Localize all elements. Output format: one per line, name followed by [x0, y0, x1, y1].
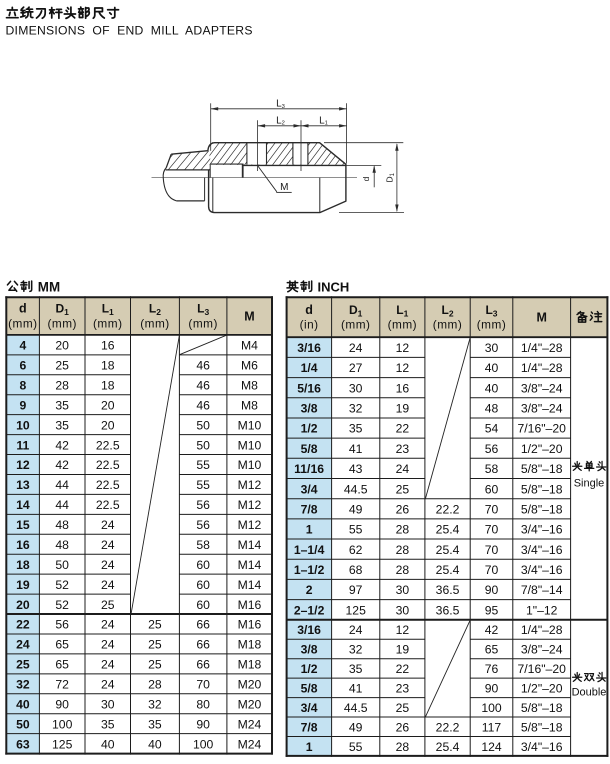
svg-text:35: 35 — [349, 662, 363, 676]
svg-text:66: 66 — [196, 638, 210, 652]
svg-text:M20: M20 — [238, 678, 262, 692]
svg-text:19: 19 — [16, 578, 30, 592]
svg-text:49: 49 — [349, 502, 363, 516]
svg-text:M18: M18 — [238, 658, 262, 672]
svg-text:3/8"–24: 3/8"–24 — [521, 381, 563, 395]
svg-text:25: 25 — [16, 658, 30, 672]
svg-text:(mm): (mm) — [188, 317, 218, 331]
svg-text:80: 80 — [196, 697, 210, 711]
svg-text:24: 24 — [101, 558, 115, 572]
svg-text:125: 125 — [346, 603, 367, 617]
svg-text:70: 70 — [485, 563, 499, 577]
svg-text:M12: M12 — [238, 478, 262, 492]
svg-text:22.5: 22.5 — [96, 478, 120, 492]
svg-text:25.4: 25.4 — [436, 523, 460, 537]
svg-text:28: 28 — [396, 740, 410, 754]
svg-text:70: 70 — [485, 523, 499, 537]
svg-text:60: 60 — [485, 482, 499, 496]
svg-text:M: M — [244, 310, 254, 324]
svg-text:3/4: 3/4 — [301, 701, 318, 715]
svg-text:1/4: 1/4 — [301, 361, 318, 375]
svg-text:7/16"–20: 7/16"–20 — [518, 662, 567, 676]
svg-text:22: 22 — [396, 662, 410, 676]
svg-text:8: 8 — [19, 378, 26, 392]
svg-text:DIMENSIONS OF END MILL ADAPTER: DIMENSIONS OF END MILL ADAPTERS — [6, 24, 253, 38]
svg-text:1"–12: 1"–12 — [526, 603, 558, 617]
svg-text:20: 20 — [16, 598, 30, 612]
svg-text:60: 60 — [196, 578, 210, 592]
svg-text:14: 14 — [16, 498, 30, 512]
svg-text:12: 12 — [396, 623, 410, 637]
svg-text:50: 50 — [196, 438, 210, 452]
svg-text:32: 32 — [16, 678, 30, 692]
svg-text:M14: M14 — [238, 578, 262, 592]
svg-text:32: 32 — [148, 697, 162, 711]
svg-text:11: 11 — [16, 438, 29, 452]
svg-text:25.4: 25.4 — [436, 543, 460, 557]
svg-text:50: 50 — [16, 717, 30, 731]
svg-text:60: 60 — [196, 598, 210, 612]
svg-text:5/8"–18: 5/8"–18 — [521, 462, 563, 476]
svg-text:3/8: 3/8 — [301, 402, 318, 416]
svg-text:(mm): (mm) — [388, 318, 418, 332]
svg-text:72: 72 — [55, 678, 69, 692]
svg-text:12: 12 — [16, 458, 30, 472]
svg-text:62: 62 — [349, 543, 363, 557]
svg-text:3/16: 3/16 — [297, 341, 321, 355]
svg-text:41: 41 — [349, 442, 363, 456]
svg-text:3/4: 3/4 — [301, 482, 318, 496]
svg-text:3/8"–24: 3/8"–24 — [521, 402, 563, 416]
svg-text:M12: M12 — [238, 518, 262, 532]
svg-text:100: 100 — [52, 717, 73, 731]
svg-text:16: 16 — [101, 339, 115, 353]
svg-text:40: 40 — [16, 697, 30, 711]
svg-text:20: 20 — [55, 339, 69, 353]
svg-text:M12: M12 — [238, 498, 262, 512]
svg-text:M8: M8 — [241, 398, 258, 412]
svg-text:65: 65 — [55, 638, 69, 652]
svg-text:25: 25 — [396, 701, 410, 715]
svg-text:44: 44 — [55, 498, 69, 512]
svg-text:25: 25 — [148, 658, 162, 672]
svg-text:24: 24 — [16, 638, 30, 652]
svg-text:42: 42 — [55, 438, 69, 452]
svg-text:24: 24 — [101, 678, 115, 692]
svg-text:25.4: 25.4 — [436, 563, 460, 577]
svg-text:44.5: 44.5 — [344, 482, 368, 496]
svg-text:40: 40 — [485, 381, 499, 395]
svg-text:27: 27 — [349, 361, 363, 375]
svg-text:L1: L1 — [319, 115, 328, 126]
svg-text:35: 35 — [55, 418, 69, 432]
svg-text:54: 54 — [485, 422, 499, 436]
svg-text:125: 125 — [52, 737, 73, 751]
svg-text:70: 70 — [196, 678, 210, 692]
svg-text:50: 50 — [55, 558, 69, 572]
svg-text:48: 48 — [485, 402, 499, 416]
svg-text:66: 66 — [196, 618, 210, 632]
svg-text:36.5: 36.5 — [436, 583, 460, 597]
svg-text:24: 24 — [101, 578, 115, 592]
svg-text:M20: M20 — [238, 697, 262, 711]
svg-text:M: M — [280, 182, 288, 193]
svg-text:26: 26 — [396, 720, 410, 734]
svg-text:1/4"–28: 1/4"–28 — [521, 361, 563, 375]
svg-text:Double: Double — [572, 686, 607, 698]
svg-text:M8: M8 — [241, 378, 258, 392]
svg-text:3/4"–16: 3/4"–16 — [521, 563, 563, 577]
svg-text:1: 1 — [306, 740, 313, 754]
svg-text:124: 124 — [481, 740, 502, 754]
svg-text:2: 2 — [306, 583, 313, 597]
svg-text:16: 16 — [16, 538, 30, 552]
svg-text:24: 24 — [101, 618, 115, 632]
svg-text:7/16"–20: 7/16"–20 — [518, 422, 567, 436]
svg-text:24: 24 — [101, 638, 115, 652]
svg-text:24: 24 — [101, 538, 115, 552]
svg-text:(mm): (mm) — [477, 318, 507, 332]
svg-text:D1: D1 — [385, 172, 397, 182]
svg-text:48: 48 — [55, 518, 69, 532]
svg-text:5/16: 5/16 — [297, 381, 321, 395]
svg-text:28: 28 — [396, 523, 410, 537]
svg-text:43: 43 — [349, 462, 363, 476]
svg-text:22: 22 — [16, 618, 30, 632]
svg-text:22.5: 22.5 — [96, 458, 120, 472]
svg-text:44: 44 — [55, 478, 69, 492]
svg-text:90: 90 — [55, 697, 69, 711]
svg-text:1/2"–20: 1/2"–20 — [521, 682, 563, 696]
svg-text:22.2: 22.2 — [436, 502, 460, 516]
svg-text:d: d — [305, 303, 313, 317]
svg-text:35: 35 — [148, 717, 162, 731]
svg-text:30: 30 — [485, 341, 499, 355]
svg-text:20: 20 — [101, 398, 115, 412]
svg-text:M10: M10 — [238, 418, 262, 432]
svg-text:13: 13 — [16, 478, 30, 492]
svg-text:(in): (in) — [300, 318, 319, 332]
svg-text:M14: M14 — [238, 558, 262, 572]
svg-text:10: 10 — [16, 418, 30, 432]
svg-text:M16: M16 — [238, 618, 262, 632]
svg-text:25: 25 — [396, 482, 410, 496]
svg-text:5/8: 5/8 — [301, 442, 318, 456]
svg-text:90: 90 — [485, 583, 499, 597]
svg-text:58: 58 — [485, 462, 499, 476]
svg-text:24: 24 — [349, 341, 363, 355]
svg-text:22.2: 22.2 — [436, 720, 460, 734]
svg-text:65: 65 — [55, 658, 69, 672]
svg-text:5/8"–18: 5/8"–18 — [521, 701, 563, 715]
svg-text:(mm): (mm) — [93, 317, 123, 331]
svg-text:65: 65 — [485, 643, 499, 657]
svg-text:23: 23 — [396, 442, 410, 456]
svg-text:95: 95 — [485, 603, 499, 617]
svg-text:7/8: 7/8 — [301, 720, 318, 734]
svg-text:40: 40 — [101, 737, 115, 751]
svg-text:5/8: 5/8 — [301, 682, 318, 696]
svg-text:23: 23 — [396, 682, 410, 696]
svg-text:44.5: 44.5 — [344, 701, 368, 715]
svg-text:19: 19 — [396, 643, 410, 657]
svg-text:28: 28 — [148, 678, 162, 692]
svg-text:49: 49 — [349, 720, 363, 734]
svg-text:24: 24 — [101, 658, 115, 672]
svg-text:M18: M18 — [238, 638, 262, 652]
svg-text:55: 55 — [349, 523, 363, 537]
svg-text:3/16: 3/16 — [297, 623, 321, 637]
svg-text:35: 35 — [349, 422, 363, 436]
svg-text:70: 70 — [485, 502, 499, 516]
svg-text:55: 55 — [196, 458, 210, 472]
svg-text:L2: L2 — [276, 115, 285, 126]
svg-text:97: 97 — [349, 583, 363, 597]
svg-text:15: 15 — [16, 518, 30, 532]
svg-text:42: 42 — [55, 458, 69, 472]
svg-text:M6: M6 — [241, 359, 258, 373]
svg-text:1/2: 1/2 — [301, 662, 318, 676]
svg-text:56: 56 — [196, 498, 210, 512]
svg-text:24: 24 — [349, 623, 363, 637]
svg-text:M10: M10 — [238, 438, 262, 452]
svg-text:100: 100 — [193, 737, 214, 751]
svg-text:12: 12 — [396, 341, 410, 355]
svg-text:46: 46 — [196, 398, 210, 412]
svg-text:100: 100 — [481, 701, 502, 715]
svg-text:d: d — [361, 176, 371, 181]
svg-text:66: 66 — [196, 658, 210, 672]
svg-text:52: 52 — [55, 598, 69, 612]
svg-text:25.4: 25.4 — [436, 740, 460, 754]
svg-text:60: 60 — [196, 558, 210, 572]
svg-text:1/2"–20: 1/2"–20 — [521, 442, 563, 456]
svg-text:40: 40 — [148, 737, 162, 751]
svg-text:12: 12 — [396, 361, 410, 375]
svg-text:1/4"–28: 1/4"–28 — [521, 341, 563, 355]
svg-text:9: 9 — [19, 398, 26, 412]
svg-text:55: 55 — [349, 740, 363, 754]
svg-text:90: 90 — [196, 717, 210, 731]
svg-text:30: 30 — [396, 583, 410, 597]
svg-text:32: 32 — [349, 643, 363, 657]
svg-text:3/8"–24: 3/8"–24 — [521, 643, 563, 657]
svg-text:30: 30 — [396, 603, 410, 617]
svg-text:25: 25 — [148, 618, 162, 632]
svg-text:5/8"–18: 5/8"–18 — [521, 720, 563, 734]
svg-text:58: 58 — [196, 538, 210, 552]
svg-text:30: 30 — [101, 697, 115, 711]
svg-text:28: 28 — [396, 563, 410, 577]
svg-text:56: 56 — [55, 618, 69, 632]
svg-text:MM: MM — [38, 280, 60, 295]
svg-text:3/4"–16: 3/4"–16 — [521, 543, 563, 557]
svg-text:30: 30 — [349, 381, 363, 395]
svg-text:35: 35 — [101, 717, 115, 731]
svg-text:16: 16 — [396, 381, 410, 395]
svg-text:5/8"–18: 5/8"–18 — [521, 482, 563, 496]
svg-text:M16: M16 — [238, 598, 262, 612]
svg-text:25: 25 — [148, 638, 162, 652]
svg-text:INCH: INCH — [318, 280, 350, 295]
svg-text:18: 18 — [16, 558, 30, 572]
svg-text:M: M — [536, 311, 546, 325]
svg-text:50: 50 — [196, 418, 210, 432]
svg-text:Single: Single — [574, 477, 605, 489]
svg-text:28: 28 — [396, 543, 410, 557]
svg-text:d: d — [19, 302, 27, 316]
svg-text:2–1/2: 2–1/2 — [294, 603, 325, 617]
svg-text:6: 6 — [19, 359, 26, 373]
svg-text:M10: M10 — [238, 458, 262, 472]
svg-text:3/4"–16: 3/4"–16 — [521, 740, 563, 754]
svg-text:25: 25 — [55, 359, 69, 373]
svg-text:3/4"–16: 3/4"–16 — [521, 523, 563, 537]
svg-text:M24: M24 — [238, 717, 262, 731]
svg-text:(mm): (mm) — [47, 317, 77, 331]
svg-text:55: 55 — [196, 478, 210, 492]
svg-text:76: 76 — [485, 662, 499, 676]
svg-text:M4: M4 — [241, 339, 258, 353]
svg-text:52: 52 — [55, 578, 69, 592]
svg-text:48: 48 — [55, 538, 69, 552]
svg-text:24: 24 — [101, 518, 115, 532]
svg-text:L3: L3 — [276, 99, 285, 110]
svg-text:68: 68 — [349, 563, 363, 577]
svg-text:19: 19 — [396, 402, 410, 416]
svg-text:22.5: 22.5 — [96, 438, 120, 452]
svg-text:56: 56 — [196, 518, 210, 532]
svg-text:36.5: 36.5 — [436, 603, 460, 617]
svg-text:117: 117 — [482, 720, 502, 734]
svg-text:1–1/4: 1–1/4 — [294, 543, 325, 557]
svg-text:7/8: 7/8 — [301, 502, 318, 516]
svg-text:M14: M14 — [238, 538, 262, 552]
svg-text:26: 26 — [396, 502, 410, 516]
svg-text:42: 42 — [485, 623, 499, 637]
svg-text:7/8"–14: 7/8"–14 — [521, 583, 563, 597]
svg-text:1: 1 — [306, 523, 313, 537]
svg-text:90: 90 — [485, 682, 499, 696]
svg-text:25: 25 — [101, 598, 115, 612]
svg-text:24: 24 — [396, 462, 410, 476]
svg-text:11/16: 11/16 — [294, 462, 324, 476]
svg-text:(mm): (mm) — [140, 317, 170, 331]
svg-text:28: 28 — [55, 378, 69, 392]
svg-text:18: 18 — [101, 359, 115, 373]
svg-text:(mm): (mm) — [433, 318, 463, 332]
svg-text:41: 41 — [349, 682, 363, 696]
svg-text:20: 20 — [101, 418, 115, 432]
svg-text:46: 46 — [196, 378, 210, 392]
svg-text:1/4"–28: 1/4"–28 — [521, 623, 563, 637]
svg-text:5/8"–18: 5/8"–18 — [521, 502, 563, 516]
svg-text:70: 70 — [485, 543, 499, 557]
svg-text:35: 35 — [55, 398, 69, 412]
svg-text:3/8: 3/8 — [301, 643, 318, 657]
svg-text:22.5: 22.5 — [96, 498, 120, 512]
svg-text:(mm): (mm) — [341, 318, 371, 332]
svg-text:1/2: 1/2 — [301, 422, 318, 436]
svg-text:46: 46 — [196, 359, 210, 373]
svg-text:56: 56 — [485, 442, 499, 456]
svg-text:32: 32 — [349, 402, 363, 416]
svg-text:63: 63 — [16, 737, 30, 751]
svg-text:22: 22 — [396, 422, 410, 436]
svg-text:40: 40 — [485, 361, 499, 375]
svg-text:1–1/2: 1–1/2 — [294, 563, 325, 577]
svg-text:4: 4 — [19, 339, 26, 353]
svg-text:M24: M24 — [238, 737, 262, 751]
svg-text:18: 18 — [101, 378, 115, 392]
svg-text:(mm): (mm) — [8, 317, 38, 331]
